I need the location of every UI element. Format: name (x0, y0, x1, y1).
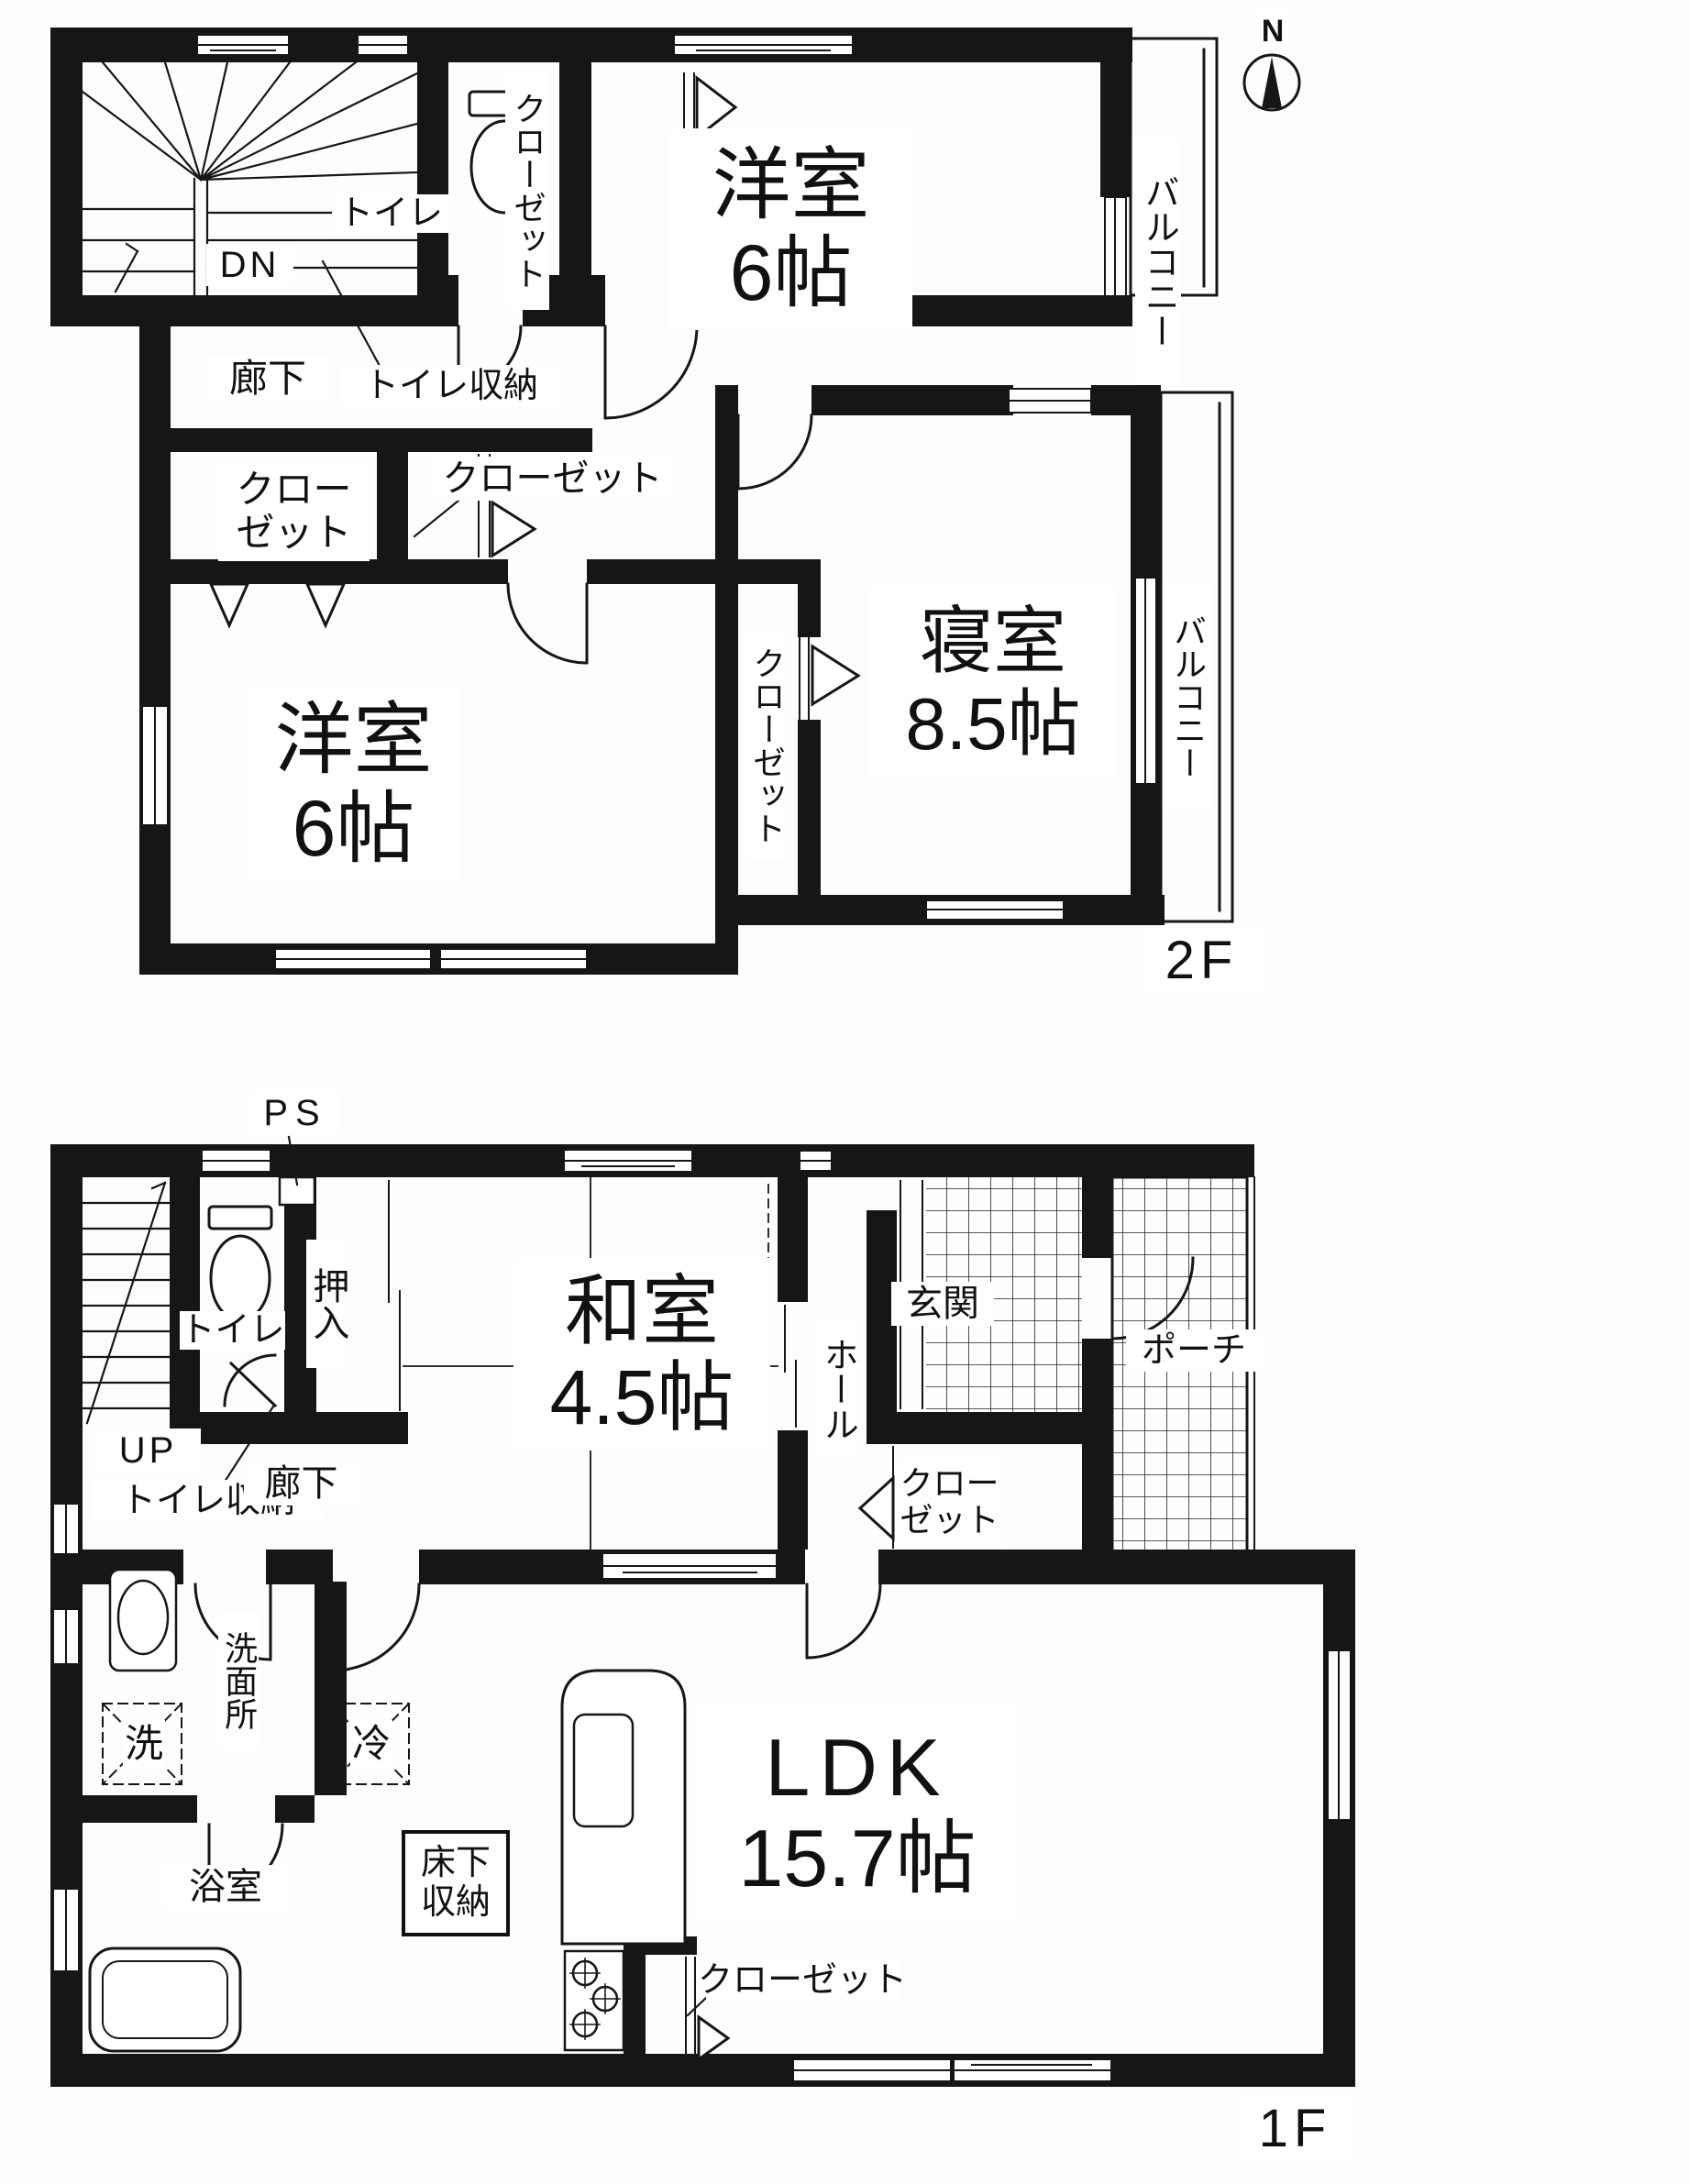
toilet-1f-label: トイレ (180, 1311, 285, 1350)
closet-hall-1f-label: クロー ゼット (897, 1458, 1002, 1546)
porch-label: ポーチ (1126, 1329, 1262, 1372)
genkan-label: 玄関 (891, 1282, 994, 1326)
room-top-2f-name: 洋室 (712, 141, 870, 229)
hall-label: ホール (816, 1322, 858, 1455)
closet-hall-line2: ゼット (900, 1502, 999, 1539)
closet-mid-2f-label: クローゼット (431, 457, 674, 501)
ldk-name: LDK (765, 1723, 949, 1814)
compass-icon (1244, 55, 1299, 110)
senmenjo-label: 洗面所 (218, 1612, 259, 1749)
washer-label: 洗 (123, 1720, 165, 1768)
room-bottom-2f-size: 6帖 (293, 785, 415, 873)
bathroom-label: 浴室 (161, 1865, 290, 1909)
closet-hall-line1: クロー (900, 1465, 999, 1502)
stove-icon (565, 1951, 624, 2050)
room-top-2f-size: 6帖 (730, 229, 853, 317)
room-top-2f-label: 洋室 6帖 (669, 128, 912, 330)
ps-label: PS (249, 1091, 341, 1135)
kitchen-counter (562, 1671, 685, 1944)
balcony-right-label: バルコニー (1165, 582, 1210, 811)
fridge-label: 冷 (350, 1720, 392, 1768)
closet-left-2f-line1: クロー (236, 468, 351, 511)
bedroom-size: 8.5帖 (905, 683, 1080, 766)
hallway-1f-label: 廊下 (244, 1462, 359, 1506)
washitsu-size: 4.5帖 (550, 1354, 734, 1440)
bedroom-name: 寝室 (920, 601, 1066, 683)
hall-closet-door (860, 1447, 893, 1548)
washbasin-icon (110, 1570, 176, 1671)
stairs-dn-label: DN (206, 244, 293, 286)
stairs-up-label: UP (95, 1428, 201, 1473)
underfloor-line1: 床下 (421, 1844, 491, 1883)
ldk-size: 15.7帖 (738, 1814, 976, 1904)
bedroom-label: 寝室 8.5帖 (869, 587, 1117, 779)
sink-icon (574, 1715, 633, 1826)
stairs-1f (83, 1183, 170, 1423)
toilet-icon-1f (209, 1207, 271, 1320)
hallway-2f-label: 廊下 (204, 356, 332, 402)
underfloor-line2: 収納 (421, 1883, 491, 1923)
oshiire-label: 押入 (306, 1240, 348, 1368)
room-bottom-2f-label: 洋室 6帖 (246, 686, 461, 883)
room-bottom-2f-name: 洋室 (275, 696, 433, 784)
compass-north-label: N (1255, 11, 1290, 51)
bathtub-icon (90, 1948, 240, 2051)
floor2-label: 2F (1140, 930, 1264, 992)
closet-left-2f-line2: ゼット (236, 511, 351, 554)
washitsu-name: 和室 (565, 1268, 719, 1354)
floor1-label: 1F (1238, 2098, 1352, 2160)
closet-left-2f-label: クロー ゼット (218, 460, 370, 561)
closet-ldk-label: クローゼット (706, 1958, 899, 2002)
toilet-storage-2f-label: トイレ収納 (341, 365, 561, 407)
underfloor-storage-label: 床下 収納 (402, 1830, 510, 1936)
balcony-top-label: バルコニー (1135, 138, 1181, 385)
ldk-label: LDK 15.7帖 (697, 1704, 1018, 1924)
washitsu-label: 和室 4.5帖 (513, 1258, 770, 1450)
toilet-2f-label: トイレ (332, 194, 449, 233)
closet-center-2f-label: クローゼット (745, 631, 789, 860)
floorplan-page: N DN トイレ クローゼット 洋室 6帖 バルコニー 廊下 トイレ収納 クロー… (0, 0, 1689, 2184)
closet-top-2f-label: クローゼット (505, 72, 549, 310)
